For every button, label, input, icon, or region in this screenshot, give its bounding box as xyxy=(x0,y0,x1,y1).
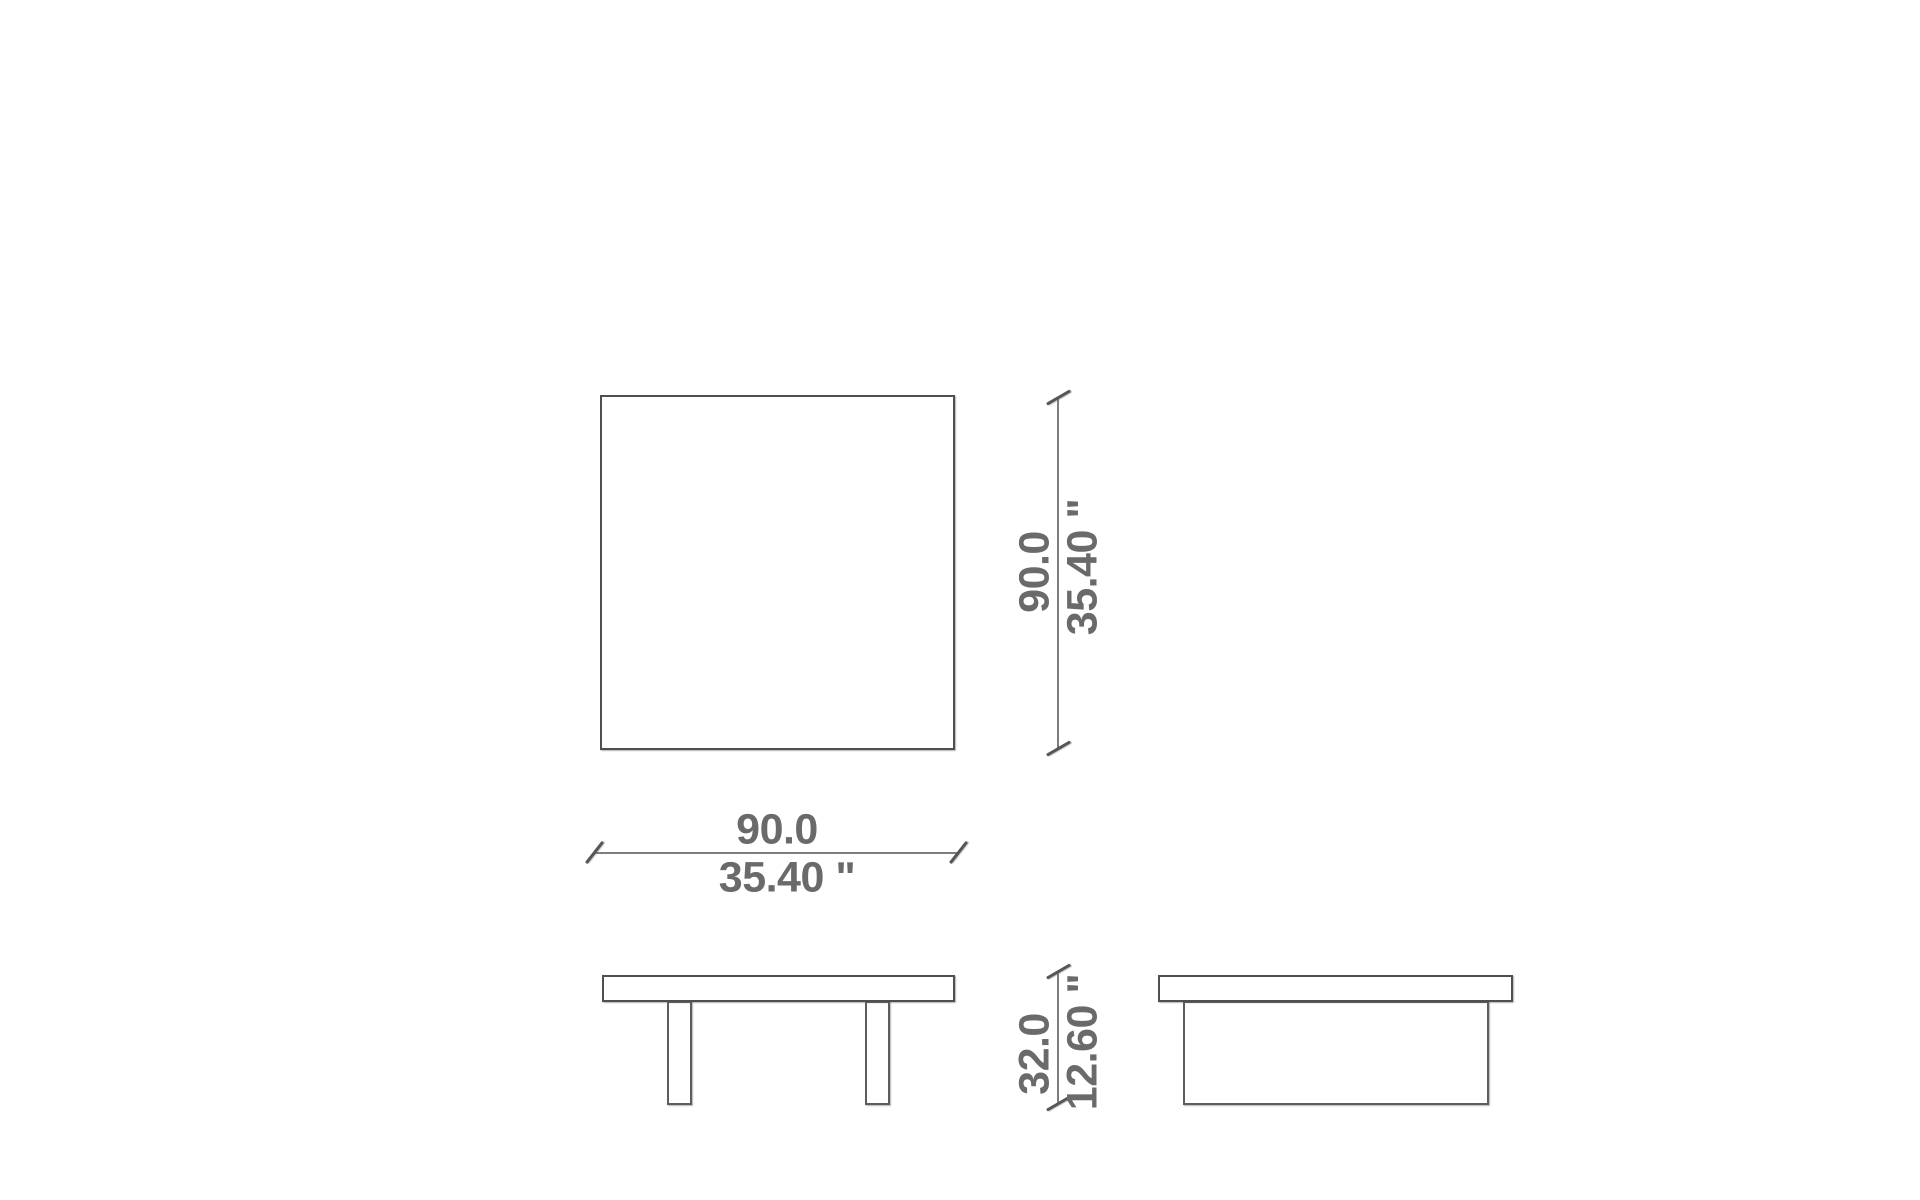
depth-value-cm: 90.0 xyxy=(1014,531,1057,613)
side-view-leg-panel xyxy=(1183,1001,1489,1105)
width-value-cm: 90.0 xyxy=(736,809,818,852)
depth-value-inches: 35.40 " xyxy=(1062,499,1105,635)
height-value-cm: 32.0 xyxy=(1014,1013,1057,1095)
side-view-tabletop xyxy=(1158,975,1513,1002)
front-view-leg-right xyxy=(865,1001,890,1105)
front-view-tabletop xyxy=(602,975,955,1002)
height-value-inches: 12.60 " xyxy=(1062,974,1105,1110)
front-view-leg-left xyxy=(667,1001,692,1105)
top-view-outline xyxy=(600,395,955,750)
dimension-drawing: 90.0 35.40 " 90.0 35.40 " 32.0 12.60 " xyxy=(0,0,1920,1200)
width-value-inches: 35.40 " xyxy=(719,857,855,900)
